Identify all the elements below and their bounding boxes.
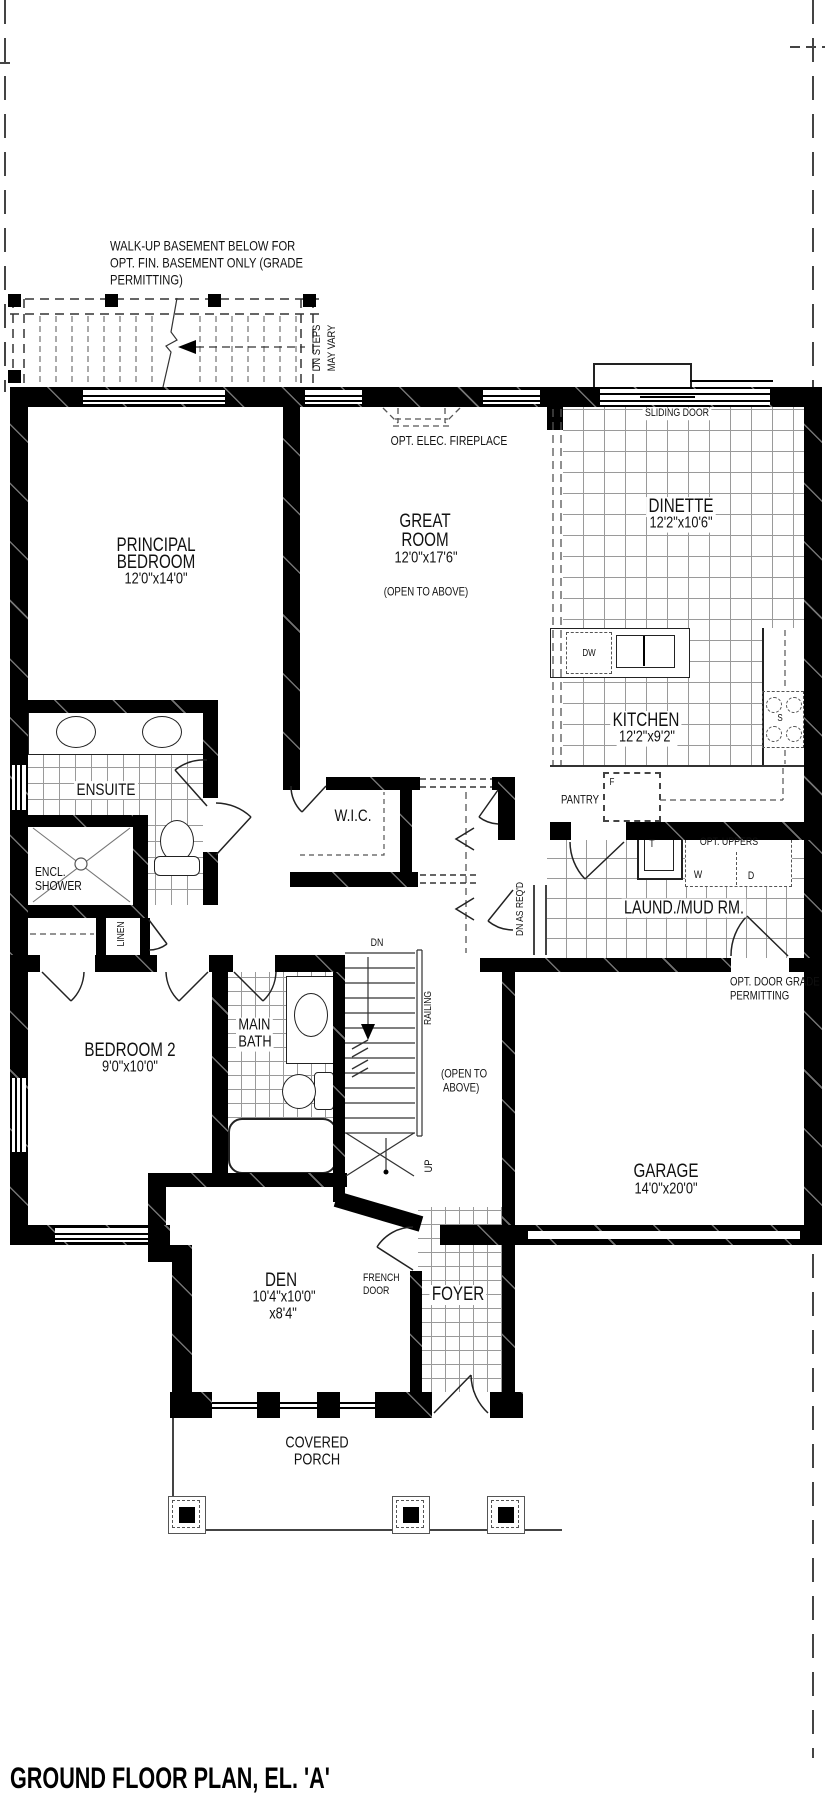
dn-label: DN (371, 938, 384, 950)
angled-wall-stair-foyer (336, 1199, 421, 1224)
main-staircase (345, 950, 422, 1176)
great-room-label: GREAT (399, 512, 450, 532)
ensuite-label: ENSUITE (74, 781, 138, 799)
great-room-open-above: (OPEN TO ABOVE) (384, 586, 468, 599)
washer-label: W (694, 870, 702, 882)
french-door-label2: DOOR (363, 1286, 389, 1298)
laundry-tub-label: T (649, 839, 654, 851)
linen-label: LINEN (117, 921, 128, 946)
pantry-label: PANTRY (561, 794, 599, 807)
main-bath-label1: MAIN (236, 1018, 273, 1035)
garage-side-door (731, 916, 788, 956)
fireplace-outline (383, 408, 460, 426)
principal-bedroom-dims: 12'0"x14'0" (124, 572, 187, 589)
dinette-greatroom-boundary (553, 409, 561, 765)
stair-winders (346, 1133, 414, 1176)
great-room-label2: ROOM (401, 531, 448, 551)
laundry-door (570, 842, 624, 879)
up-label: UP (424, 1160, 436, 1173)
dn-steps-label: DN STEPS (312, 325, 324, 372)
linen-door (149, 920, 167, 950)
fireplace-label: OPT. ELEC. FIREPLACE (391, 434, 508, 448)
may-vary-label: MAY VARY (327, 325, 339, 372)
opt-door-label2: PERMITTING (730, 990, 789, 1003)
door-swings (42, 760, 788, 1413)
walkup-note-line2: OPT. FIN. BASEMENT ONLY (GRADE (110, 256, 303, 271)
french-door-label1: FRENCH (363, 1273, 400, 1285)
wic-door (291, 786, 326, 812)
den-dims1: 10'4"x10'0" (252, 1290, 315, 1307)
foyer-label: FOYER (429, 1285, 486, 1305)
fridge-label: F (610, 778, 615, 789)
railing-label: RAILING (424, 991, 435, 1025)
encl-shower-label1: ENCL. (35, 865, 66, 879)
dn-as-reqd-label: DN AS REQ'D (516, 882, 527, 936)
den-french-door (377, 1227, 413, 1270)
covered-porch-label1: COVERED (285, 1436, 348, 1453)
floor-plan-drawing: WALK-UP BASEMENT BELOW FOR OPT. FIN. BAS… (0, 0, 825, 1813)
pantry-door (479, 790, 498, 824)
walkup-direction-arrow (178, 340, 196, 354)
walkup-note-line1: WALK-UP BASEMENT BELOW FOR (110, 239, 295, 254)
laundry-label: LAUND./MUD RM. (622, 899, 747, 918)
stair-open-above2: ABOVE) (443, 1082, 479, 1095)
great-room-dims: 12'0"x17'6" (394, 551, 457, 568)
main-bath-label2: BATH (236, 1035, 274, 1052)
wic-label: W.I.C. (334, 807, 371, 825)
stair-open-above1: (OPEN TO (441, 1068, 487, 1081)
kitchen-dims: 12'2"x9'2" (617, 730, 678, 747)
shower-drain (75, 858, 87, 870)
sliding-door-label: SLIDING DOOR (643, 408, 712, 420)
dn-arrow (361, 1024, 375, 1040)
bedroom2-door (166, 972, 208, 1001)
dishwasher-label: DW (582, 649, 595, 660)
walkup-posts (8, 294, 316, 383)
wic-hall-opening (420, 875, 480, 883)
opt-door-label1: OPT. DOOR GRADE (730, 976, 820, 989)
walkup-basement-stairs (8, 294, 320, 388)
walkup-note-line3: PERMITTING) (110, 273, 183, 288)
main-bath-door (234, 972, 276, 1001)
greatroom-cased-opening (420, 779, 492, 787)
principal-bedroom-door (216, 803, 251, 855)
mud-hall-door (488, 890, 513, 930)
stair-railing (417, 950, 422, 1136)
break-chevrons (456, 828, 474, 920)
covered-porch-label2: PORCH (294, 1453, 340, 1470)
den-dims2: x8'4" (269, 1307, 297, 1324)
front-door (434, 1375, 488, 1413)
garage-dims: 14'0"x20'0" (634, 1182, 697, 1199)
drawing-title: GROUND FLOOR PLAN, EL. 'A' (10, 1762, 330, 1796)
opt-uppers-label: OPT. UPPERS (700, 837, 758, 849)
encl-shower-label2: SHOWER (35, 879, 82, 893)
dinette-dims: 12'2"x10'6" (647, 516, 715, 533)
bedroom2-closet-door (42, 972, 84, 1001)
garage-label: GARAGE (633, 1162, 698, 1182)
dryer-label: D (748, 871, 754, 883)
bedroom2-dims: 9'0"x10'0" (102, 1060, 158, 1077)
ensuite-door (175, 760, 207, 806)
stove-label: S (777, 714, 782, 725)
